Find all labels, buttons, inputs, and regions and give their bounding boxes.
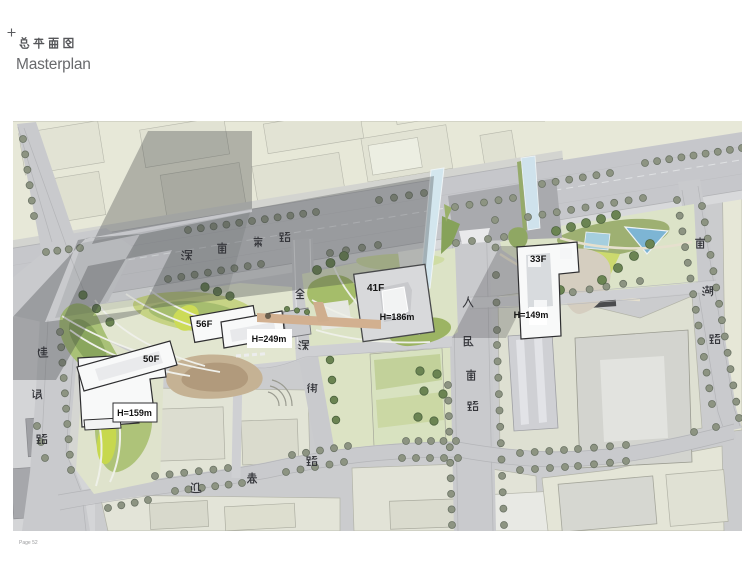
svg-text:56F: 56F	[196, 319, 213, 330]
svg-text:33F: 33F	[530, 254, 547, 265]
svg-text:H=149m: H=149m	[514, 310, 549, 320]
svg-text:50F: 50F	[143, 354, 160, 365]
svg-text:Masterplan: Masterplan	[16, 56, 91, 73]
svg-text:H=249m: H=249m	[252, 334, 287, 344]
svg-text:Page 52: Page 52	[19, 540, 38, 546]
svg-text:H=186m: H=186m	[380, 312, 415, 322]
svg-text:41F: 41F	[367, 283, 384, 294]
svg-text:H=159m: H=159m	[117, 408, 152, 418]
